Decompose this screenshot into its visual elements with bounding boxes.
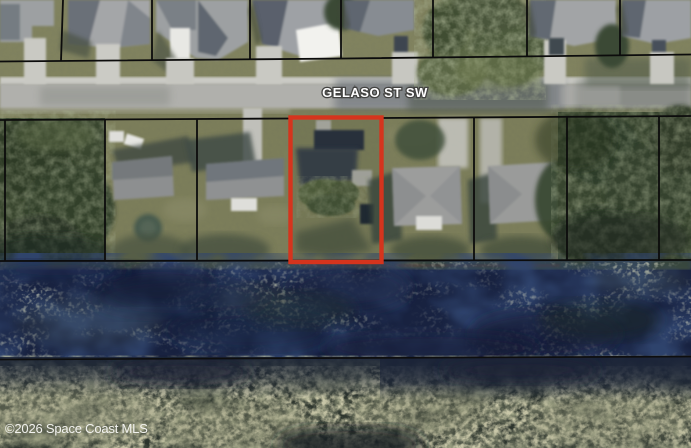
svg-text:GELASO ST SW: GELASO ST SW [322,85,428,100]
svg-text:©2026 Space Coast MLS: ©2026 Space Coast MLS [5,421,148,436]
